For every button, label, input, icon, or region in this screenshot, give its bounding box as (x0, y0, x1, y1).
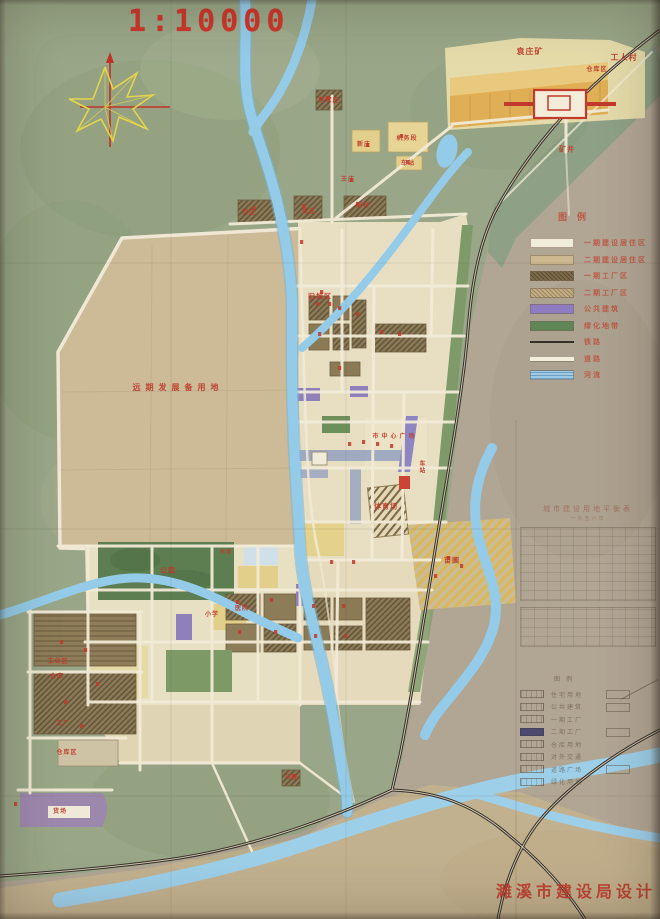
station-building (399, 476, 410, 489)
map-label: 苗圃 (444, 558, 460, 565)
compass-rose-icon (55, 45, 185, 165)
legend-row: 二期建设居住区 (530, 252, 656, 269)
pencil-legend-row: 住宅用地 (520, 688, 660, 701)
planning-map-photo: 1:10000 图例 一期建设居住区二期建设居住区一期工厂区二期工厂区公共建筑绿… (0, 0, 660, 919)
pencil-legend-label: 道路广场 (551, 765, 583, 774)
pencil-legend-row: 道路广场 (520, 763, 660, 776)
pencil-legend-label: 二期工厂 (551, 727, 583, 736)
building-mark (328, 302, 331, 306)
map-label: 新庄 (357, 142, 371, 148)
legend-row-label: 道路 (584, 354, 602, 364)
pencil-legend-swatch (520, 753, 544, 761)
building-mark (338, 366, 341, 370)
legend-swatch-rail-line (530, 337, 574, 347)
map-label: 市中心广场 (372, 434, 417, 440)
legend-swatch-purple (530, 304, 574, 314)
pencil-legend-swatch (520, 728, 544, 736)
map-label: 仓库区 (586, 67, 607, 73)
pencil-legend-row: 公共建筑 (520, 701, 660, 714)
building-mark (64, 700, 67, 704)
building-mark (270, 598, 273, 602)
pencil-legend-label: 仓库用地 (551, 740, 583, 749)
map-label: 工人村 (611, 54, 638, 62)
map-label: 货场 (53, 809, 67, 815)
map-label: 小学 (205, 612, 219, 618)
legend-row: 道路 (530, 351, 656, 368)
map-label: 机务段 (396, 136, 417, 142)
building-mark (300, 240, 303, 244)
legend-swatch-tan-hatch (530, 288, 574, 298)
map-label: 工业区 (47, 659, 68, 665)
legend-row: 河流 (530, 367, 656, 384)
legend-row-label: 二期建设居住区 (584, 255, 647, 265)
map-label: 医院 (235, 606, 249, 612)
legend-swatch-road (530, 354, 574, 364)
building-mark (344, 634, 347, 638)
legend-row: 铁路 (530, 334, 656, 351)
pencil-legend-swatch (520, 703, 544, 711)
legend-panel: 图例 一期建设居住区二期建设居住区一期工厂区二期工厂区公共建筑绿化地带铁路道路河… (530, 210, 656, 384)
building-mark (342, 604, 345, 608)
legend-row: 一期工厂区 (530, 268, 656, 285)
legend-row-label: 公共建筑 (584, 304, 620, 314)
map-label: 车站 (401, 161, 415, 167)
pencil-legend-row: 仓库用地 (520, 738, 660, 751)
building-mark (316, 302, 319, 306)
building-mark (330, 560, 333, 564)
map-label: 市场 (220, 551, 232, 556)
legend-row-label: 河流 (584, 370, 602, 380)
legend-row-label: 一期工厂区 (584, 271, 629, 281)
building-mark (96, 682, 99, 686)
legend-row: 绿化地带 (530, 318, 656, 335)
building-mark (338, 306, 341, 310)
pencil-legend-row: 对外交通 (520, 751, 660, 764)
building-mark (362, 440, 365, 444)
pencil-table-title: 城市建设用地平衡表 (520, 504, 656, 514)
building-mark (80, 724, 83, 728)
pencil-table-grid (520, 527, 656, 601)
building-mark (60, 640, 63, 644)
building-mark (274, 630, 277, 634)
pencil-legend-row: 一期工厂 (520, 713, 660, 726)
map-label: 旧村 (356, 203, 370, 209)
legend-row-label: 一期建设居住区 (584, 238, 647, 248)
pencil-table: 城市建设用地平衡表 一九五六年 (520, 504, 656, 640)
building-mark (390, 444, 393, 448)
pencil-legend-swatch (520, 690, 544, 698)
building-mark (434, 574, 437, 578)
building-mark (14, 802, 17, 806)
pencil-table-grid-2 (520, 607, 656, 647)
pencil-legend-right-swatch (606, 765, 630, 774)
legend-swatch-green (530, 321, 574, 331)
pencil-legend-label: 住宅用地 (551, 690, 583, 699)
building-mark (236, 600, 239, 604)
legend-swatch-brown-hatch (530, 271, 574, 281)
building-mark (460, 564, 463, 568)
building-mark (314, 634, 317, 638)
legend-row-label: 绿化地带 (584, 321, 620, 331)
legend-row: 公共建筑 (530, 301, 656, 318)
pencil-legend-swatch (520, 740, 544, 748)
pencil-table-subtitle: 一九五六年 (520, 515, 656, 522)
pencil-legend-row: 二期工厂 (520, 726, 660, 739)
pencil-legend-label: 对外交通 (551, 752, 583, 761)
map-label: 袁庄矿 (517, 48, 544, 56)
map-label: 马庄 (285, 775, 299, 781)
map-label: 远期发展备用地 (133, 384, 224, 392)
legend-row-label: 二期工厂区 (584, 288, 629, 298)
credit-label: 濉溪市建设局设计 (496, 878, 656, 902)
building-mark (356, 312, 359, 316)
building-mark (380, 330, 383, 334)
map-label: 李家庄 (318, 98, 339, 104)
pencil-legend-right-swatch (606, 703, 630, 712)
building-mark (352, 560, 355, 564)
legend-row-label: 铁路 (584, 337, 602, 347)
legend-swatch-cream (530, 238, 574, 248)
pencil-legend-label: 一期工厂 (551, 715, 583, 724)
map-label: 旧城区 (308, 294, 332, 301)
pencil-legend-right-swatch (606, 690, 630, 699)
map-label: 王庄 (341, 177, 355, 183)
scale-label: 1:10000 (128, 4, 289, 39)
pencil-legend-swatch (520, 778, 544, 786)
building-mark (318, 332, 321, 336)
building-mark (84, 648, 87, 652)
legend-row: 一期建设居住区 (530, 235, 656, 252)
pencil-legend-right-swatch (606, 728, 630, 737)
legend-title: 图例 (558, 210, 656, 223)
map-label: 体育场 (374, 504, 398, 511)
building-mark (302, 204, 305, 208)
map-label: 矿井 (559, 147, 575, 154)
building-mark (238, 630, 241, 634)
legend-swatch-tan (530, 255, 574, 265)
map-label: 仓库区 (56, 750, 77, 756)
pencil-legend-label: 绿化用地 (551, 777, 583, 786)
pencil-legend-label: 公共建筑 (551, 702, 583, 711)
building-mark (398, 332, 401, 336)
map-label: 仓库 (50, 674, 64, 680)
map-label: 张庄 (302, 209, 316, 215)
pencil-legend: 图例 住宅用地公共建筑一期工厂二期工厂仓库用地对外交通道路广场绿化用地 (520, 674, 660, 796)
map-label: 刘庄 (242, 210, 256, 216)
legend-swatch-river (530, 370, 574, 380)
map-label: 工厂 (56, 721, 70, 727)
map-label: 公园 (160, 568, 176, 575)
building-mark (348, 442, 351, 446)
pencil-legend-swatch (520, 715, 544, 723)
map-label: 车站 (418, 460, 424, 474)
building-mark (376, 442, 379, 446)
legend-row: 二期工厂区 (530, 285, 656, 302)
pencil-legend-row: 绿化用地 (520, 776, 660, 789)
pencil-legend-swatch (520, 765, 544, 773)
building-mark (312, 604, 315, 608)
